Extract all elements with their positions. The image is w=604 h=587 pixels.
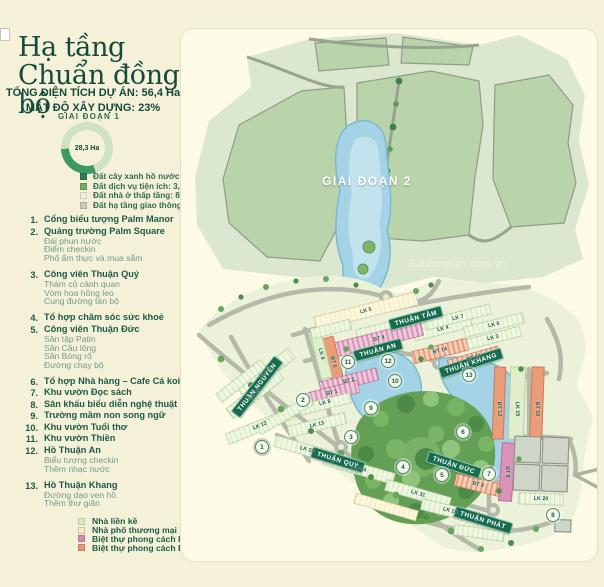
amenity-marker-8: 8 xyxy=(546,508,560,522)
land-legend-swatch xyxy=(80,192,87,199)
amenity-marker-6: 6 xyxy=(456,425,470,439)
amenity-number: 8. xyxy=(0,400,38,410)
amenity-item: 5.Công viên Thuận ĐứcSân tập PatinSân Cầ… xyxy=(0,325,186,370)
land-legend-swatch xyxy=(80,173,87,180)
amenity-marker-4: 4 xyxy=(396,460,410,474)
phase1-label: GIAI ĐOẠN 1 xyxy=(0,112,178,121)
amenity-item: 6.Tổ hợp Nhà hàng – Cafe Cá koi xyxy=(0,377,186,387)
donut-value: 28,3 Ha xyxy=(75,145,100,152)
amenity-title: Tổ hợp Nhà hàng – Cafe Cá koi xyxy=(44,377,180,387)
land-legend-swatch xyxy=(80,183,87,190)
housing-legend-swatch xyxy=(78,518,85,525)
block-label: LK 3 xyxy=(487,334,500,343)
ui-artifact xyxy=(0,28,10,41)
amenity-marker-12: 12 xyxy=(381,354,395,368)
watermark: Batdongsan.com.vn xyxy=(409,259,506,270)
land-legend-swatch xyxy=(80,202,87,209)
block-label: LK 9 xyxy=(317,348,326,361)
block-label: BT 10 xyxy=(534,402,541,417)
amenity-sub: Thềm thư giãn xyxy=(44,499,186,508)
masterplan-map: Batdongsan.com.vn GIAI ĐOẠN 2 THUẬN TÂMT… xyxy=(180,28,598,562)
phase1-donut-chart: 28,3 Ha xyxy=(61,122,113,174)
block-label: BT 8 xyxy=(504,466,511,478)
amenity-sub: Phố ẩm thực và mua sắm xyxy=(44,254,186,263)
amenity-number: 6. xyxy=(0,377,38,387)
block-label: LK 31 xyxy=(410,489,426,499)
block-label: BT 2 xyxy=(343,377,356,386)
amenity-number: 12. xyxy=(0,446,38,456)
amenity-item: 2.Quảng trường Palm SquareĐài phun nướcĐ… xyxy=(0,227,186,263)
amenity-title: Cổng biểu tượng Palm Manor xyxy=(44,215,174,225)
amenity-marker-13: 13 xyxy=(462,368,476,382)
amenity-marker-1: 1 xyxy=(255,440,269,454)
amenity-title: Sân khấu biểu diễn nghệ thuật xyxy=(44,400,177,410)
block-label: BT 14 xyxy=(432,346,448,355)
block-label: LK 8 xyxy=(319,399,332,408)
block-label: BT 1 xyxy=(326,389,339,398)
page: Hạ tầng Chuẩn đồng bộ TỔNG DIỆN TÍCH DỰ … xyxy=(0,0,604,587)
amenity-marker-3: 3 xyxy=(344,430,358,444)
amenity-title: Khu vườn Đọc sách xyxy=(44,388,132,398)
block-label: LK 15 xyxy=(514,402,521,417)
amenity-title: Trường mầm non song ngữ xyxy=(44,411,165,421)
map-overlay: Batdongsan.com.vn GIAI ĐOẠN 2 THUẬN TÂMT… xyxy=(181,29,597,561)
block-label: LK 7 xyxy=(452,314,465,323)
amenity-title: Quảng trường Palm Square xyxy=(44,227,165,237)
amenity-marker-5: 5 xyxy=(435,468,449,482)
street-banner: THUẬN PHÁT xyxy=(453,506,513,535)
amenity-number: 3. xyxy=(0,270,38,280)
amenity-title: Khu vườn Thiền xyxy=(44,434,115,444)
block-label: LK 4 xyxy=(437,325,450,334)
amenity-item: 10.Khu vườn Tuổi thơ xyxy=(0,423,186,433)
phase2-label: GIAI ĐOẠN 2 xyxy=(315,174,419,188)
housing-legend-swatch xyxy=(78,535,85,542)
amenity-title: Khu vườn Tuổi thơ xyxy=(44,423,127,433)
amenity-item: 8.Sân khấu biểu diễn nghệ thuật xyxy=(0,400,186,410)
amenity-marker-11: 11 xyxy=(341,355,355,369)
block-label: BT 12 xyxy=(496,402,503,417)
block-label: LK 6 xyxy=(488,321,501,330)
block-label: BT 9 xyxy=(472,481,485,490)
amenity-item: 9.Trường mầm non song ngữ xyxy=(0,411,186,421)
amenity-item: 12.Hồ Thuận AnBiểu tượng checkinThềm nhạ… xyxy=(0,446,186,474)
block-label: LK 5 xyxy=(360,307,373,316)
stat-total-area: TỔNG DIỆN TÍCH DỰ ÁN: 56,4 Ha xyxy=(0,86,186,101)
amenity-marker-9: 9 xyxy=(364,401,378,415)
amenities-list: 1.Cổng biểu tượng Palm Manor2.Quảng trườ… xyxy=(0,215,186,515)
amenity-sub: Cung đường tản bộ xyxy=(44,297,186,306)
amenity-number: 11. xyxy=(0,434,38,444)
amenity-item: 13.Hồ Thuận KhangĐường dạo ven hồThềm th… xyxy=(0,481,186,509)
amenity-number: 4. xyxy=(0,313,38,323)
amenity-number: 5. xyxy=(0,325,38,335)
amenity-sub: Thềm nhạc nước xyxy=(44,465,186,474)
amenity-item: 7.Khu vườn Đọc sách xyxy=(0,388,186,398)
amenity-number: 1. xyxy=(0,215,38,225)
amenity-marker-7: 7 xyxy=(482,467,496,481)
amenity-marker-10: 10 xyxy=(388,374,402,388)
block-label: LK 12 xyxy=(252,420,268,431)
amenity-marker-2: 2 xyxy=(296,393,310,407)
amenity-item: 11.Khu vườn Thiền xyxy=(0,434,186,444)
amenity-item: 1.Cổng biểu tượng Palm Manor xyxy=(0,215,186,225)
amenity-title: Tổ hợp chăm sóc sức khoẻ xyxy=(44,313,164,323)
amenity-item: 4.Tổ hợp chăm sóc sức khoẻ xyxy=(0,313,186,323)
amenity-number: 10. xyxy=(0,423,38,433)
housing-legend-swatch xyxy=(78,544,85,551)
block-label: BT 5 xyxy=(329,356,338,369)
amenity-number: 2. xyxy=(0,227,38,237)
block-label: LK 13 xyxy=(309,420,325,429)
title-line-1: Hạ tầng xyxy=(18,34,188,62)
amenity-number: 7. xyxy=(0,388,38,398)
amenity-item: 3.Công viên Thuận QuýThảm cỏ cảnh quanVò… xyxy=(0,270,186,306)
block-label: LK 20 xyxy=(534,496,549,503)
amenity-number: 9. xyxy=(0,411,38,421)
amenity-number: 13. xyxy=(0,481,38,491)
amenity-sub: Đường chạy bộ xyxy=(44,361,186,370)
housing-legend-swatch xyxy=(78,527,85,534)
